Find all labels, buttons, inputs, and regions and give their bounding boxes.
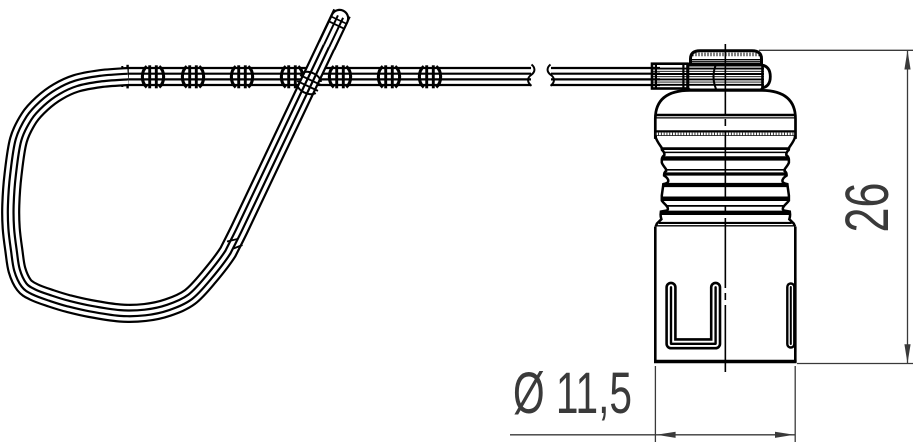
svg-text:Ø 11,5: Ø 11,5 (513, 361, 632, 426)
svg-text:26: 26 (833, 183, 901, 233)
